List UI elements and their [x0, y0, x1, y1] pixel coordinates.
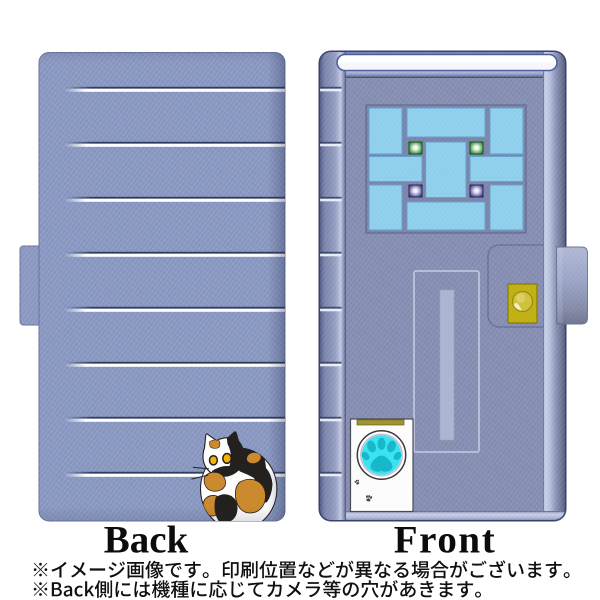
- svg-text:Back: Back: [104, 519, 189, 562]
- svg-text:Front: Front: [394, 519, 497, 562]
